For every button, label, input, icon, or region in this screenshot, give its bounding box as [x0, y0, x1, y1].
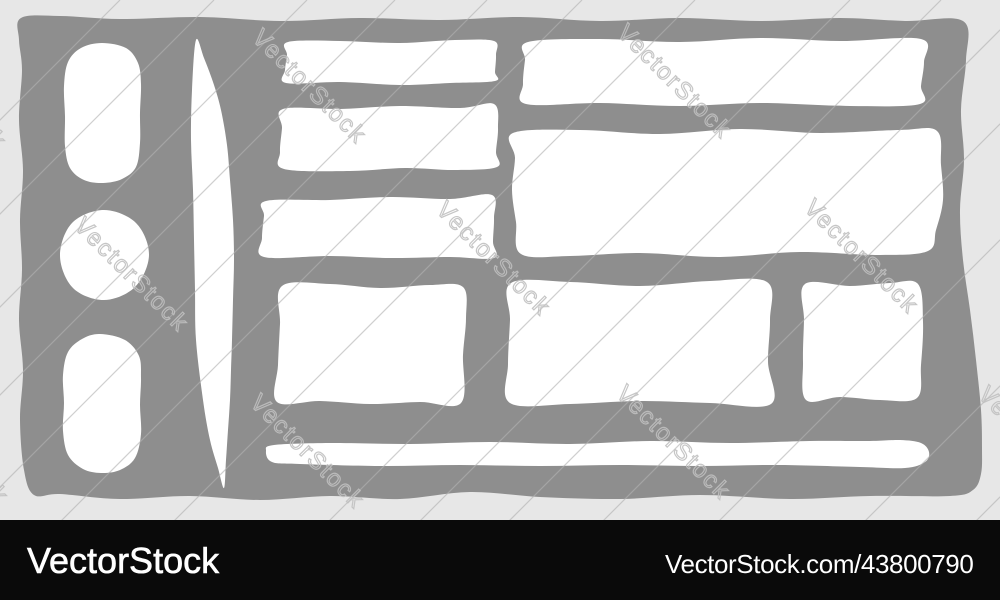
svg-text:VectorStock.com/43800790: VectorStock.com/43800790: [665, 549, 973, 579]
svg-text:VectorStock: VectorStock: [27, 540, 220, 581]
